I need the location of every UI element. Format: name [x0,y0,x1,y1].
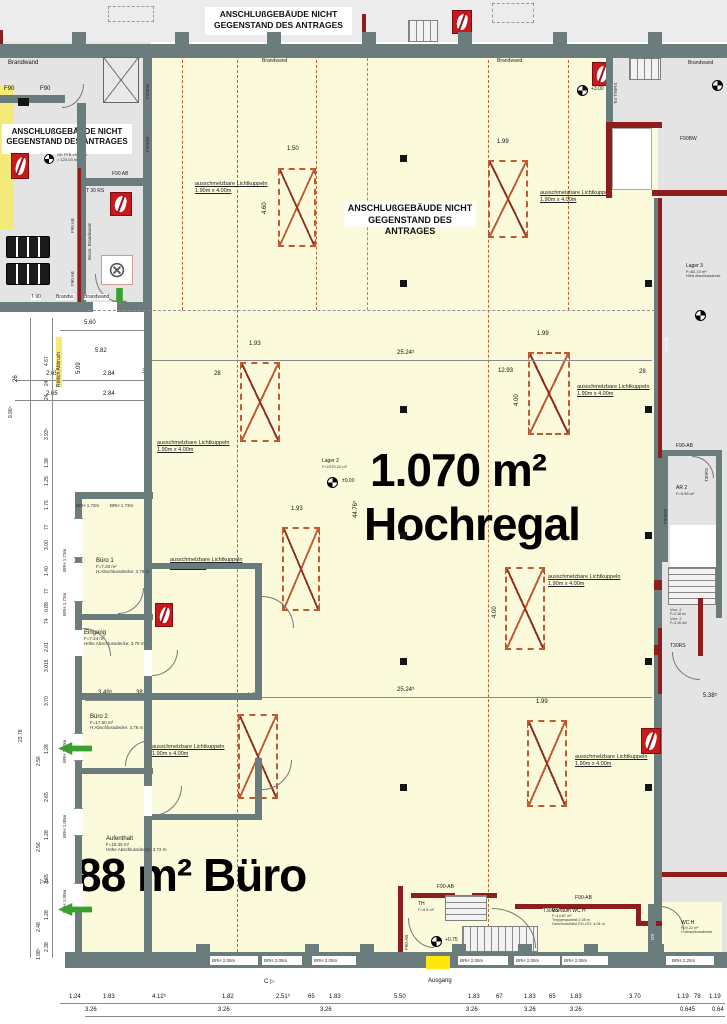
f90ab-label: F90-AB [575,895,592,901]
f90-label: F90 [4,86,14,93]
survey-marker-icon [327,477,338,488]
exit-door-highlight [426,956,450,969]
window [74,518,83,558]
wall [75,693,262,700]
brh-label: BRH 2.05m [314,958,337,963]
fire-extinguisher-icon [110,192,132,216]
column-marker [645,532,652,539]
wall [86,178,143,186]
brandwand-label: Brandwand [688,60,713,66]
dim-label: 2.01 [44,636,50,652]
dim-label: 5.60 [84,320,96,327]
dashed-line [182,60,183,310]
f90bw-label: F90BW [663,500,668,524]
stairs-icon [668,567,716,605]
room-label-lager2: Lager 2 F=1070.22 m² [322,458,347,469]
f90ab-label: F90-AB [676,443,693,449]
dim-label: 74 [44,614,50,624]
f90ab-label: F90 AB [112,171,128,177]
dim-line [60,1003,725,1004]
machine-icon [6,236,50,258]
dim-label: 4.12⁵ [152,994,166,1001]
brh-label: BRH 2.05m [212,958,235,963]
skylight [505,567,545,650]
dim-label: 4.60 [262,192,269,214]
pillar [72,32,86,45]
brh-label: BRH 2.05m [460,958,483,963]
dim-label: 9.96⁵ [8,398,14,418]
dim-label: 1.40 [44,560,50,576]
door-gap [74,630,83,656]
dim-label: 2.84 [103,391,115,398]
wall-hall-left [144,312,152,958]
column-marker [400,406,407,413]
dim-label: 24 [44,376,50,386]
column-marker [400,155,407,162]
dim-label: 12.93 [498,368,513,375]
tor-t90rs-label: Tor T90RS [613,74,618,104]
skylight [278,168,316,247]
pillar [360,944,374,954]
roetlich-abbruch-label: Rötlich Abbruch [56,337,62,387]
dim-label: 1.83 [524,994,536,1001]
pillar [305,944,319,954]
pillar [362,32,376,45]
dim-label: 1.76 [44,494,50,510]
dim-line [85,700,152,701]
column-marker [645,406,652,413]
survey-marker-icon [695,310,706,321]
skylight-label: ausschmelzbare Lichtkuppeln1.90m x 4.00m [152,744,224,758]
dim-label: 3.015 [44,654,50,672]
wall [75,768,153,774]
f90-label: F90 [40,86,50,93]
skylight [488,160,528,238]
dim-label: 1.28 [44,904,50,920]
window [74,562,83,602]
door-mark [654,645,662,655]
dim-label: 2.84 [103,371,115,378]
skylight-label: ausschmelzbare Lichtkuppeln1.90m x 4.00m [195,181,267,195]
dim-label: 28 [214,371,221,378]
column-marker [400,658,407,665]
brh-label: BRH 1.73m [62,584,67,616]
brandwand-label: Brandwand [497,58,522,64]
dim-label: 3.26 [524,1007,536,1014]
dim-label: 1.93 [291,506,303,513]
dim-label: 3.26 [570,1007,582,1014]
pillar [584,944,598,954]
dim-label: 3.93⁵ [44,420,50,440]
firewall [662,872,727,877]
room-void [670,525,716,567]
shaft-crossed-box [103,57,139,103]
dim-label: 77 [44,584,50,594]
brandwand-label: Brandwand [84,294,109,300]
pillar [553,32,567,45]
dim-label: 3.26 [218,1007,230,1014]
bottom-wall [65,952,727,968]
ds-label: DS [650,926,655,940]
stairs-top-icon [408,20,438,42]
dim-label: 2.65 [44,868,50,884]
firewall [652,190,727,196]
window [74,808,83,836]
dim-line [152,360,652,361]
room-void [612,128,652,190]
besst-brandwand-label: Besst. Brandwand [87,190,92,260]
dim-label: 24 [44,390,50,400]
big-office-label: 88 m² Büro [76,848,306,902]
wall [75,492,153,499]
dim-label: 1.25 [44,470,50,486]
room-label-th: TH F=4.5 m² [418,901,434,912]
f90bw-label: F90BW [145,75,150,99]
dim-label: 1.99 [537,331,549,338]
column-marker [645,280,652,287]
dim-line [60,330,152,331]
level-label: +3.00 [591,86,604,92]
fire-extinguisher-icon [641,728,661,754]
dim-label: 1.99 [497,139,509,146]
pillar [458,32,472,45]
dim-label: 3.70 [629,994,641,1001]
brandwand-label: Brandwand [8,60,38,67]
survey-marker-icon [44,154,54,164]
floor-plan: ANSCHLUßGEBÄUDE NICHT GEGENSTAND DES ANT… [0,0,727,1024]
dim-label: 1.83 [570,994,582,1001]
room-label-vorraum: Vorraum WC H F=14.87 m² Treppenpodest 2.… [552,908,605,926]
skylight-label: ausschmelzbare Lichtkuppeln1.90m x 4.00m [577,384,649,398]
column-marker [400,280,407,287]
dim-label: 1.28 [44,738,50,754]
wall [255,563,262,700]
dim-label: 1.93 [249,341,261,348]
wall-element [18,98,29,106]
t30rs-label: T 30 RS [86,188,104,194]
dim-label: 5.82 [95,348,107,355]
room-label-aufenthalt: Aufenthalt F=18.36 m² Höhe Abschlussdeck… [106,836,167,852]
dim-label: 44.76⁵ [353,478,360,518]
room-label-lager3: Lager 3 F=82.10 m² Höhe Abschlussdecke [686,263,720,278]
room-label-vorr2: Vorr. 2 F=3.18 m² Vorr. 2 F=3.16 m2 [670,607,687,625]
pillar [196,944,210,954]
dim-label: 1.19 [677,994,689,1001]
pillar [175,32,189,45]
dim-label: 5.50 [394,994,406,1001]
wall [152,814,262,820]
dim-label: 26 [13,368,20,382]
roof-object-outline [108,6,154,22]
dim-label: 1.24 [69,994,81,1001]
dim-label: 1.99 [536,699,548,706]
brh-label: BRH 2.05m [516,958,539,963]
firewall [606,122,612,198]
roof-object-outline-2 [492,3,534,23]
dim-label: 28 [639,369,646,376]
dim-line [15,400,152,401]
firewall-f90w [658,198,662,458]
room-label-buero2: Büro 2 F=17.60 m² H:Abschlussdecke: 3.76… [90,714,143,730]
door-mark [654,580,662,590]
dim-label: 1.83 [468,994,480,1001]
dim-line [85,1016,725,1017]
wall [152,563,262,569]
wall [606,58,613,128]
dim-label: 0.645 [680,1007,695,1014]
dim-label: 2.65 [44,786,50,802]
dim-label: 25.24⁵ [397,687,415,694]
brh-label: BRH 1.73m [76,503,99,508]
f90bw-label: F90BW [680,136,697,142]
lager3-area [660,200,727,312]
dim-label: 2.38 [44,936,50,952]
survey-marker-icon [712,80,723,91]
brandw-label: Brandw. [56,294,74,300]
fire-extinguisher-icon [452,10,472,34]
dim-label: 77 [44,520,50,530]
machine-icon [6,263,50,285]
brh-label: BRH 1.73m [110,503,133,508]
skylight [240,362,280,442]
level-label: +0.75 [445,937,458,943]
wall [0,95,65,103]
column-marker [645,784,652,791]
skylight [527,720,567,807]
wall [75,614,153,620]
skylight [528,352,570,435]
column-marker [645,658,652,665]
door-gap [144,786,152,816]
skylight-label: ausschmelzbare Lichtkuppeln1.90m x 4.00m [548,574,620,588]
brh-label: BRH 1.00m [62,808,67,838]
dim-label: 1.19 [709,994,721,1001]
besst-brandwand-wall [78,168,81,303]
banner-hall: ANSCHLUßGEBÄUDE NICHT GEGENSTAND DES ANT… [344,201,476,227]
dim-label: 2.51⁵ [276,994,290,1001]
pillar [650,944,664,954]
dim-label: 2.56 [36,750,42,766]
dashed-line [568,60,569,310]
section-marker-c: C ▷ [264,979,275,986]
column-marker [400,532,407,539]
stairs-icon [629,58,661,80]
banner-top: ANSCHLUßGEBÄUDE NICHT GEGENSTAND DES ANT… [205,7,352,35]
f90bw-label: F90BW [145,128,150,152]
brh-label: BRH 2.25m [672,958,695,963]
firewall [398,886,403,958]
dim-label: 2.56 [36,836,42,852]
dim-label: 1.83 [103,994,115,1001]
f90ab-label: F90 AB [70,258,75,286]
banner-left: ANSCHLUßGEBÄUDE NICHT GEGENSTAND DES ANT… [2,124,132,154]
fire-extinguisher-icon [11,153,29,179]
dim-label: 65 [549,994,556,1001]
dim-label: 3.26 [85,1007,97,1014]
dim-label: 5.09 [76,352,83,374]
door-gap [144,650,152,676]
skylight [282,527,320,611]
dim-line [15,380,152,381]
t30rs-label: T30RS [704,460,709,482]
dim-label: 2.48 [36,916,42,932]
dashed-line [316,60,317,310]
dim-label: 67 [496,994,503,1001]
wall [716,450,722,618]
dim-label: 1.50 [287,146,299,153]
room-label-wch: WC H F=9.22 m² H:Abschlussdecke [681,920,712,934]
brh-label: BRH 2.05m [564,958,587,963]
top-wall [0,44,727,58]
room-label-ar2: AR 2 F=9.98 m² [676,485,694,496]
dim-label: 3.26 [466,1007,478,1014]
dim-line [52,318,53,958]
boundary-line [367,58,368,310]
f90w-label: F90-W [664,325,669,351]
dim-label: 4.00 [492,596,499,618]
pillar [267,32,281,45]
stairs-icon [445,895,487,921]
dim-label: 3.26 [320,1007,332,1014]
room-label-buero1: Büro 1 F=7.33 m² H:Abschlussdecke: 3.79 … [96,558,149,574]
fire-extinguisher-icon [155,603,173,627]
ausgang-label: Ausgang [428,978,452,985]
firewall [698,598,703,656]
big-name-label: Hochregal [364,497,580,551]
brh-label: BRH 2.05m [264,958,287,963]
right-strip-area [660,310,727,960]
dim-label: 4.67 [44,348,50,366]
dim-label: 1.38 [44,452,50,468]
f90ab-label: F90 AB [70,205,75,233]
dim-label: 65 [308,994,315,1001]
dim-label: 0.64 [712,1007,724,1014]
firewall [658,628,662,694]
brandwand-label: Brandwand [262,58,287,64]
skylight-label: ausschmelzbare Lichtkuppeln1.90m x 4.00m [157,440,229,454]
dim-label: 1.28 [44,824,50,840]
dim-label: 25.24⁵ [397,350,415,357]
f90ab-label: F90-AB [437,884,454,890]
wall [255,758,262,820]
column-marker [400,784,407,791]
dim-label: 3.70 [44,690,50,706]
dim-label: 4.00 [514,384,521,406]
dim-line [30,318,31,958]
skylight-label: ausschmelzbare Lichtkuppeln1.90m x 4.00m [575,754,647,768]
dim-label: 0.89 [44,596,50,612]
dim-label: 78 [694,994,701,1001]
pillar [648,32,662,45]
dim-label: 23.78 [18,722,24,742]
big-area-label: 1.070 m² [370,443,546,497]
dim-label: 5.38⁵ [703,693,717,700]
skylight-label: ausschmelzbare Lichtkuppeln1.90m x 4.00m [540,190,612,204]
survey-marker-icon [577,85,588,96]
dim-label: 1.82 [222,994,234,1001]
dim-label: 1.98⁵ [36,944,42,960]
dim-label: 1.83 [329,994,341,1001]
pillar [452,944,466,954]
t90-label: T 90 [31,294,41,300]
firewall [606,122,662,128]
dim-label: 3.00 [44,534,50,550]
boundary-line-h [88,310,660,311]
pillar [518,944,532,954]
t30rs-label: T30RS [670,643,686,649]
brh-label: BRH 1.73m [62,540,67,572]
